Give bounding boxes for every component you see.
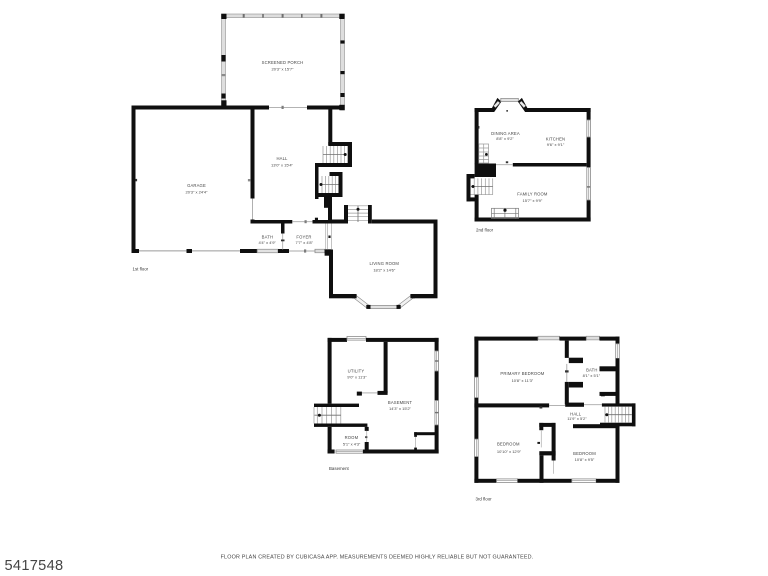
svg-text:Basement: Basement	[329, 466, 350, 471]
svg-text:8'8" x 9'2": 8'8" x 9'2"	[496, 136, 514, 141]
svg-text:10'8" x 11'3": 10'8" x 11'3"	[512, 378, 534, 383]
svg-text:10'10" x 12'9": 10'10" x 12'9"	[497, 449, 522, 454]
svg-text:FAMILY ROOM: FAMILY ROOM	[517, 192, 548, 197]
svg-text:PRIMARY BEDROOM: PRIMARY BEDROOM	[500, 371, 544, 376]
svg-text:BASEMENT: BASEMENT	[388, 400, 413, 405]
svg-text:1st floor: 1st floor	[133, 267, 149, 272]
svg-text:BEDROOM: BEDROOM	[497, 442, 520, 447]
svg-text:4'4" x 4'9": 4'4" x 4'9"	[258, 240, 276, 245]
svg-text:18'2" x 14'6": 18'2" x 14'6"	[373, 268, 396, 273]
svg-text:13'0" x 15'4": 13'0" x 15'4"	[271, 162, 294, 167]
svg-text:11'9" x 5'2": 11'9" x 5'2"	[567, 416, 587, 421]
svg-text:ROOM: ROOM	[345, 435, 359, 440]
svg-text:3rd floor: 3rd floor	[476, 497, 493, 502]
svg-text:BEDROOM: BEDROOM	[573, 451, 596, 456]
svg-text:15'7" x 9'9": 15'7" x 9'9"	[523, 198, 543, 203]
svg-text:5417548: 5417548	[5, 558, 64, 574]
svg-text:FOYER: FOYER	[296, 235, 311, 240]
svg-text:14'3" x 15'2": 14'3" x 15'2"	[389, 406, 412, 411]
svg-text:20'3" x 24'4": 20'3" x 24'4"	[186, 189, 209, 194]
svg-text:9'6" x 9'1": 9'6" x 9'1"	[547, 142, 565, 147]
svg-text:5'1" x 4'3": 5'1" x 4'3"	[343, 442, 361, 447]
svg-text:HALL: HALL	[276, 156, 288, 161]
svg-text:8'1" x 5'1": 8'1" x 5'1"	[583, 373, 601, 378]
svg-text:SCREENED PORCH: SCREENED PORCH	[262, 60, 304, 65]
svg-text:9'0" x 11'3": 9'0" x 11'3"	[347, 375, 367, 380]
svg-text:20'3" x 15'7": 20'3" x 15'7"	[272, 66, 295, 71]
svg-text:7'7" x 4'8": 7'7" x 4'8"	[296, 240, 314, 245]
svg-text:FLOOR PLAN CREATED BY CUBICASA: FLOOR PLAN CREATED BY CUBICASA APP. MEAS…	[221, 554, 534, 560]
svg-text:2nd floor: 2nd floor	[476, 228, 494, 233]
svg-text:LIVING ROOM: LIVING ROOM	[370, 261, 400, 266]
svg-text:BATH: BATH	[262, 235, 273, 240]
svg-text:KITCHEN: KITCHEN	[546, 136, 565, 141]
svg-text:UTILITY: UTILITY	[348, 368, 365, 373]
svg-text:GARAGE: GARAGE	[187, 183, 206, 188]
svg-text:10'8" x 9'5": 10'8" x 9'5"	[575, 457, 595, 462]
